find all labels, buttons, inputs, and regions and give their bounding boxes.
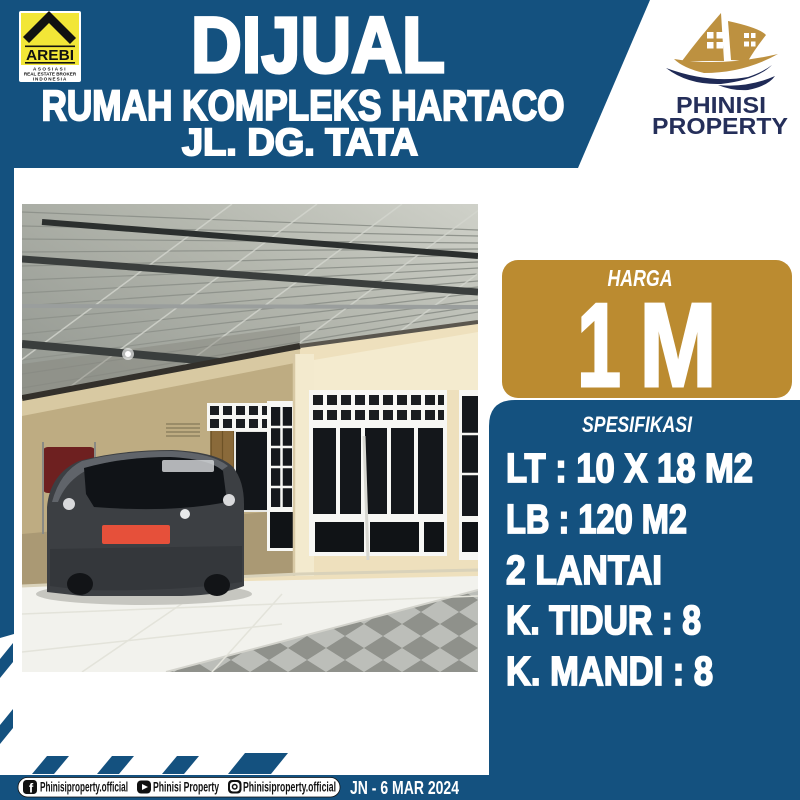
svg-text:M: M [640, 279, 717, 412]
svg-text:INDONESIA: INDONESIA [33, 77, 68, 82]
svg-text:SPESIFIKASI: SPESIFIKASI [582, 412, 693, 437]
svg-text:PROPERTY: PROPERTY [652, 113, 788, 139]
svg-text:Phinisiproperty.official: Phinisiproperty.official [40, 780, 128, 795]
svg-text:K. TIDUR : 8: K. TIDUR : 8 [506, 597, 701, 643]
svg-text:1: 1 [577, 279, 621, 412]
svg-text:K. MANDI : 8: K. MANDI : 8 [506, 648, 713, 694]
svg-text:2 LANTAI: 2 LANTAI [506, 547, 662, 593]
svg-text:JL. DG. TATA: JL. DG. TATA [182, 122, 418, 164]
svg-text:Phinisiproperty.official: Phinisiproperty.official [243, 780, 336, 795]
svg-text:LB : 120 M2: LB : 120 M2 [506, 496, 687, 542]
svg-text:Phinisi Property: Phinisi Property [153, 780, 219, 795]
svg-text:DIJUAL: DIJUAL [191, 0, 445, 89]
svg-text:AREBI: AREBI [26, 48, 74, 64]
svg-text:JN - 6 MAR 2024: JN - 6 MAR 2024 [350, 777, 460, 798]
svg-text:f: f [29, 781, 34, 796]
svg-text:LT : 10 X 18 M2: LT : 10 X 18 M2 [506, 445, 753, 491]
